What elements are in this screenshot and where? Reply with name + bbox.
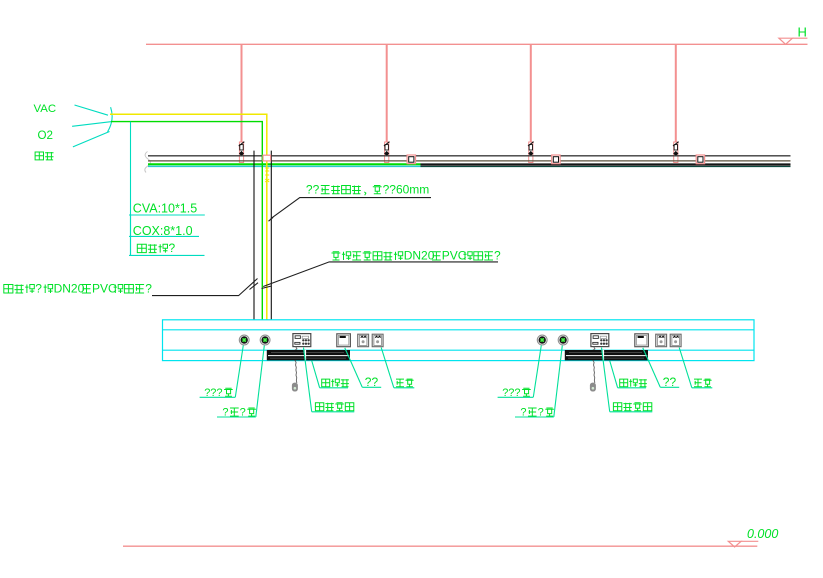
svg-text:VAC: VAC xyxy=(34,103,57,115)
svg-text:?: ? xyxy=(35,282,42,296)
svg-text:COX:8*1.0: COX:8*1.0 xyxy=(133,224,193,238)
svg-text:?: ? xyxy=(145,282,152,296)
svg-text:?: ? xyxy=(494,249,501,263)
svg-text:DN20: DN20 xyxy=(54,282,85,296)
svg-text:O2: O2 xyxy=(38,129,53,142)
svg-text:H: H xyxy=(798,25,807,40)
svg-text:?: ? xyxy=(169,241,176,255)
svg-text:??60mm: ??60mm xyxy=(383,182,430,196)
svg-text:CVA:10*1.5: CVA:10*1.5 xyxy=(133,201,197,215)
svg-text:??: ?? xyxy=(306,182,320,196)
svg-text:0.000: 0.000 xyxy=(747,527,778,541)
svg-text:??: ?? xyxy=(663,375,677,389)
svg-text:DN20: DN20 xyxy=(404,249,435,263)
svg-text:PVC: PVC xyxy=(442,249,467,263)
svg-text:PVC: PVC xyxy=(92,282,117,296)
svg-text:??: ?? xyxy=(365,375,379,389)
